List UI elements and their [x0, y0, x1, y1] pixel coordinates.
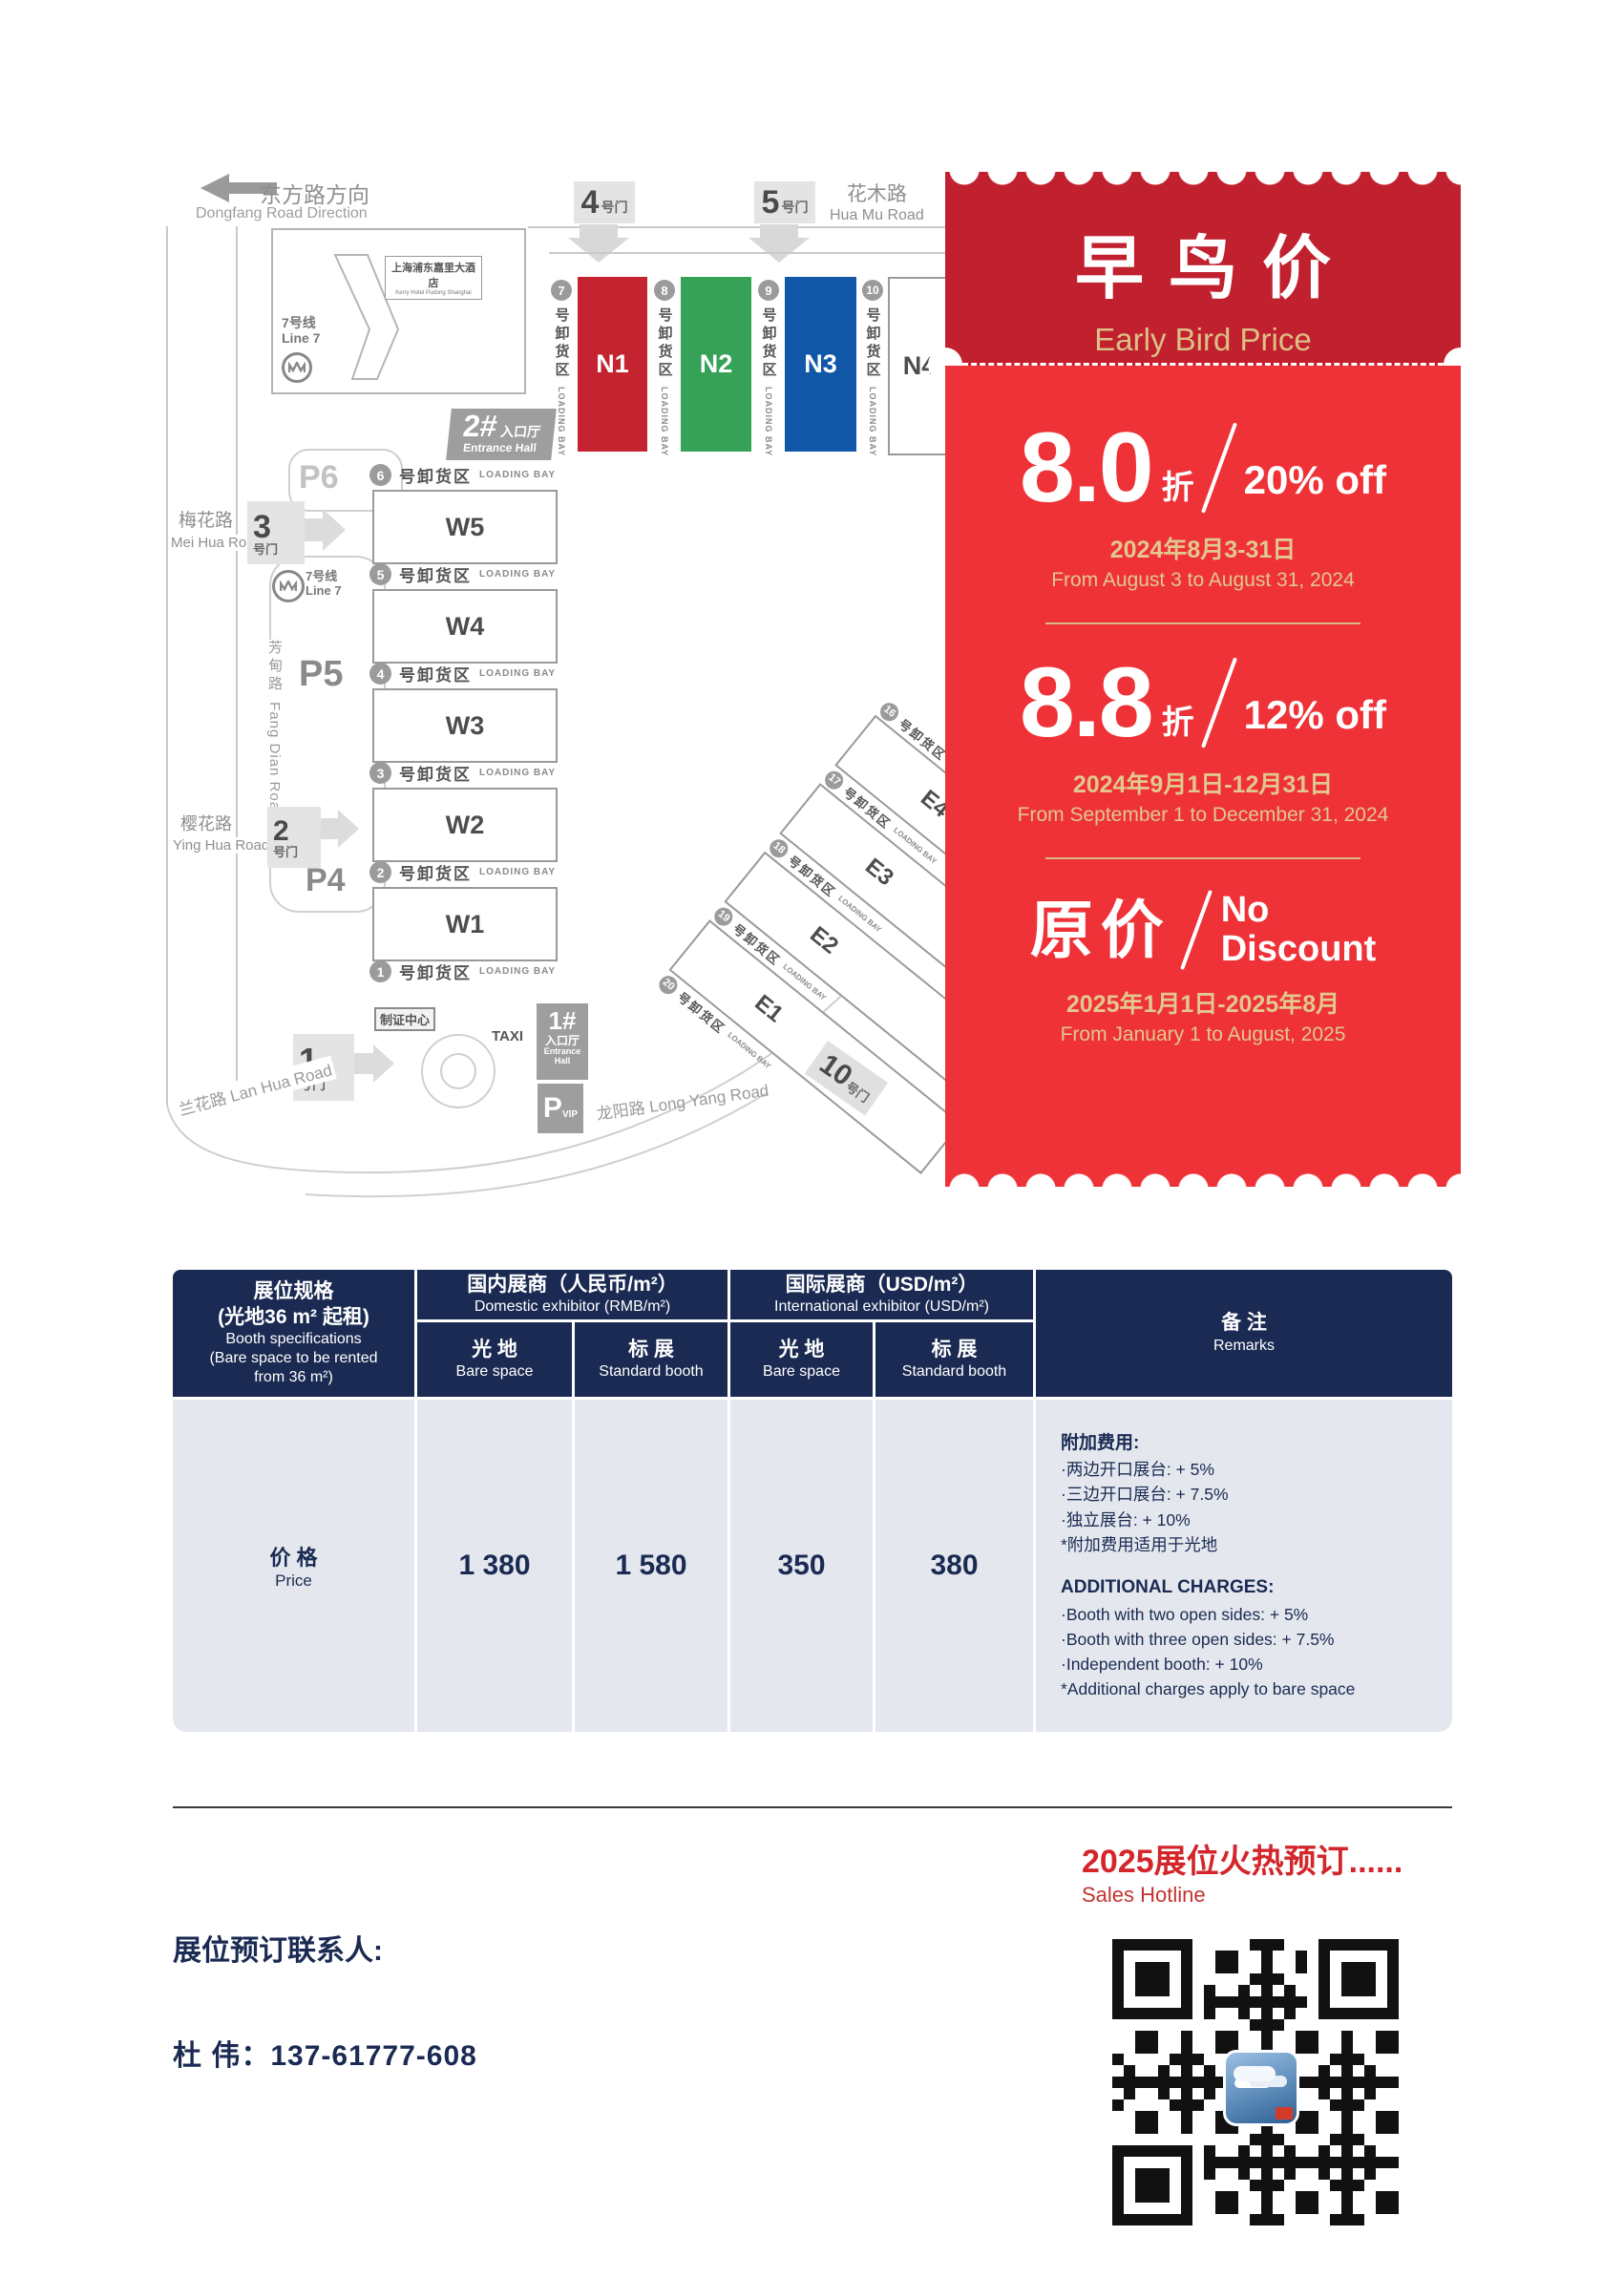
loading-bay-10-en: LOADING BAY [868, 387, 877, 456]
entrance-2-cn: 入口厅 [499, 422, 541, 441]
badge-center-label: 制证中心 [374, 1007, 435, 1031]
loading-bay-6-en: LOADING BAY [479, 470, 556, 480]
domestic-header-cn: 国内展商（人民币/m²） [467, 1273, 678, 1297]
price-domestic-standard: 1 580 [575, 1400, 728, 1732]
hotel-name-en: Kerry Hotel Pudong Shanghai [388, 290, 479, 296]
metro-line-cn-2: 7号线 [306, 570, 342, 584]
subcol1-en: Bare space [456, 1362, 534, 1382]
huamu-road-en: Hua Mu Road [830, 207, 924, 224]
spec-header-en2: (Bare space to be rented [209, 1349, 377, 1368]
hall-w2-label: W2 [446, 811, 485, 840]
metro-line-en-2: Line 7 [306, 584, 342, 599]
hall-n3-label: N3 [804, 349, 837, 379]
hall-n2: N2 [681, 277, 751, 452]
tier2-unit: 折 [1162, 696, 1194, 743]
loading-bay-6-number: 6 [369, 464, 391, 486]
entrance-hall-1: 1# 入口厅 Entrance Hall [537, 1003, 588, 1080]
loading-bay-5: 5 号卸货区 LOADING BAY [369, 562, 556, 586]
subcol3-cn: 光 地 [779, 1338, 825, 1362]
loading-bay-8-number: 8 [654, 280, 675, 301]
entrance-2-en: Entrance Hall [453, 441, 547, 454]
loading-bay-7-cn: 号卸货区 [552, 307, 572, 380]
loading-bay-3: 3 号卸货区 LOADING BAY [369, 761, 556, 785]
loading-bay-2-en: LOADING BAY [479, 867, 556, 877]
loading-bay-6: 6 号卸货区 LOADING BAY [369, 463, 556, 487]
tier2-rate: 8.8 [1020, 653, 1152, 752]
qr-center-logo [1223, 2050, 1299, 2126]
remarks-cn-item-1: ·两边开口展台: + 5% [1061, 1457, 1355, 1482]
yinghua-road-en: Ying Hua Road [171, 837, 271, 854]
international-header-cn: 国际展商（USD/m²） [786, 1273, 979, 1297]
fangdian-road-cn: 芳甸路 [266, 640, 283, 694]
tier1-discount: 20% off [1244, 457, 1386, 503]
early-bird-coupon: 早鸟价 Early Bird Price 8.0 折 20% off 2024年… [945, 172, 1461, 1184]
remarks-cn-title: 附加费用: [1061, 1430, 1355, 1458]
entrance-1-cn: 入口厅 [537, 1035, 588, 1047]
tier-full-price: 原价 No Discount [945, 888, 1461, 972]
hall-w1-label: W1 [446, 910, 485, 939]
hall-w3: W3 [372, 688, 558, 763]
hall-w4: W4 [372, 589, 558, 664]
hotline-title: 2025展位火热预订...... [1082, 1835, 1403, 1882]
metro-line-cn: 7号线 [282, 315, 320, 330]
remarks-en-title: ADDITIONAL CHARGES: [1061, 1574, 1355, 1602]
spec-header-en1: Booth specifications [225, 1330, 361, 1349]
tier1-unit: 折 [1162, 461, 1194, 508]
loading-bay-1-cn: 号卸货区 [399, 960, 472, 983]
metro-line-en: Line 7 [282, 330, 320, 346]
loading-bay-10-cn: 号卸货区 [863, 307, 883, 380]
parking-p5: P5 [299, 654, 343, 695]
metro-logo-icon-2 [272, 570, 305, 602]
loading-bay-10-number: 10 [862, 280, 883, 301]
domestic-group-header: 国内展商（人民币/m²） Domestic exhibitor (RMB/m²) [417, 1270, 728, 1319]
price-value-3: 350 [777, 1550, 825, 1582]
coupon-header: 早鸟价 Early Bird Price [945, 172, 1461, 363]
remarks-cn-item-4: *附加费用适用于光地 [1061, 1532, 1355, 1557]
qr-logo-cloud-icon [1234, 2066, 1276, 2081]
tier1-date-cn: 2024年8月3-31日 [945, 535, 1461, 567]
loading-bay-8-cn: 号卸货区 [655, 307, 675, 380]
entrance-1-en: Entrance Hall [537, 1047, 588, 1066]
loading-bay-5-cn: 号卸货区 [399, 562, 472, 586]
coupon-title-cn: 早鸟价 [945, 172, 1461, 312]
metro-logo-icon [282, 352, 312, 383]
tier3-date-cn: 2025年1月1日-2025年8月 [945, 989, 1461, 1022]
hall-n1-label: N1 [596, 349, 629, 379]
hall-n2-label: N2 [700, 349, 733, 379]
metro-line7-label-1: 7号线 Line 7 [282, 315, 320, 346]
tier3-dates: 2025年1月1日-2025年8月 From January 1 to Augu… [945, 989, 1461, 1048]
loading-bay-1-en: LOADING BAY [479, 966, 556, 977]
venue-map: 东方路方向 Dongfang Road Direction 上海浦东嘉里大酒店 … [148, 138, 955, 1213]
subcol4-cn: 标 展 [932, 1338, 978, 1362]
tier3-discount-line2: Discount [1221, 930, 1377, 969]
parking-vip-sub: VIP [562, 1109, 578, 1120]
loading-bay-1: 1 号卸货区 LOADING BAY [369, 960, 556, 983]
price-value-2: 1 580 [615, 1550, 686, 1582]
subcol-domestic-standard: 标 展 Standard booth [575, 1322, 728, 1397]
loading-bay-5-en: LOADING BAY [479, 569, 556, 580]
gate-5-number: 5 [762, 184, 780, 221]
price-value-1: 1 380 [458, 1550, 530, 1582]
tier2-dates: 2024年9月1日-12月31日 From September 1 to Dec… [945, 770, 1461, 829]
hall-w3-label: W3 [446, 711, 485, 741]
hall-w1: W1 [372, 887, 558, 961]
footer-divider [173, 1806, 1452, 1808]
loading-bay-4: 4 号卸货区 LOADING BAY [369, 662, 556, 686]
hall-n3: N3 [785, 277, 856, 452]
remarks-cn-item-3: ·独立展台: + 10% [1061, 1508, 1355, 1532]
tier2-discount: 12% off [1244, 692, 1386, 738]
loading-bay-9-cn: 号卸货区 [759, 307, 779, 380]
tier1-dates: 2024年8月3-31日 From August 3 to August 31,… [945, 535, 1461, 594]
tier-separator-2 [1045, 857, 1360, 859]
hall-n1: N1 [578, 277, 647, 452]
remarks-header-cell: 备 注 Remarks [1036, 1270, 1452, 1397]
remarks-en-item-4: *Additional charges apply to bare space [1061, 1677, 1355, 1701]
subcol3-en: Bare space [763, 1362, 840, 1382]
hall-w5: W5 [372, 490, 558, 564]
coupon-body: 8.0 折 20% off 2024年8月3-31日 From August 3… [945, 366, 1461, 1187]
subcol-international-bare: 光 地 Bare space [730, 1322, 873, 1397]
loading-bay-2-number: 2 [369, 861, 391, 883]
gate-5: 5 号门 [754, 181, 815, 223]
gate-4-suffix: 号门 [601, 198, 627, 217]
fangdian-road-label: 芳甸路 Fang Dian Road [264, 640, 285, 819]
loading-bay-2: 2 号卸货区 LOADING BAY [369, 860, 556, 884]
tier3-discount: No Discount [1221, 891, 1377, 969]
gate-3-number: 3 [253, 511, 271, 543]
loading-bay-8: 8 号卸货区 LOADING BAY [652, 280, 677, 456]
parking-vip: P VIP [538, 1084, 583, 1133]
loading-bay-1-number: 1 [369, 960, 391, 982]
loading-bay-5-number: 5 [369, 563, 391, 585]
tier1-slash-icon [1201, 422, 1237, 513]
hall-w5-label: W5 [446, 513, 485, 542]
hall-w4-label: W4 [446, 612, 485, 642]
price-label-cn: 价 格 [269, 1541, 317, 1571]
loading-bay-10: 10 号卸货区 LOADING BAY [860, 280, 885, 456]
entrance-1-number: 1# [537, 1007, 588, 1035]
subcol-domestic-bare: 光 地 Bare space [417, 1322, 572, 1397]
loading-bay-9: 9 号卸货区 LOADING BAY [756, 280, 781, 456]
subcol2-cn: 标 展 [628, 1338, 674, 1362]
international-group-header: 国际展商（USD/m²） International exhibitor (US… [730, 1270, 1033, 1319]
gate1-arrow-icon [350, 1044, 394, 1083]
subcol-international-standard: 标 展 Standard booth [875, 1322, 1033, 1397]
remarks-body-cell: 附加费用: ·两边开口展台: + 5% ·三边开口展台: + 7.5% ·独立展… [1036, 1400, 1452, 1732]
coupon-title-en: Early Bird Price [945, 322, 1461, 358]
taxi-label: TAXI [492, 1028, 523, 1044]
tier2-slash-icon [1201, 657, 1237, 748]
price-label-en: Price [275, 1571, 312, 1591]
tier2-date-en: From September 1 to December 31, 2024 [945, 802, 1461, 829]
loading-bay-9-number: 9 [758, 280, 779, 301]
domestic-header-en: Domestic exhibitor (RMB/m²) [475, 1297, 670, 1317]
loading-bay-3-en: LOADING BAY [479, 768, 556, 778]
remarks-en-item-3: ·Independent booth: + 10% [1061, 1652, 1355, 1677]
spec-header-cn2: (光地36 m² 起租) [218, 1305, 369, 1330]
tier-separator-1 [1045, 622, 1360, 624]
qr-logo-flag-icon [1276, 2107, 1293, 2120]
tier1-date-en: From August 3 to August 31, 2024 [945, 567, 1461, 594]
hall-w2: W2 [372, 788, 558, 862]
contact-label: 展位预订联系人: [173, 1927, 383, 1969]
spec-header-cell: 展位规格 (光地36 m² 起租) Booth specifications (… [173, 1270, 414, 1397]
direction-sign-cn: 东方路方向 [260, 177, 369, 209]
tier3-slash-icon [1180, 890, 1213, 970]
loading-bay-4-number: 4 [369, 663, 391, 685]
parking-vip-p: P [543, 1092, 562, 1125]
loading-bay-9-en: LOADING BAY [764, 387, 773, 456]
loading-bay-2-cn: 号卸货区 [399, 860, 472, 884]
remarks-header-en: Remarks [1213, 1337, 1275, 1356]
gate-3-suffix: 号门 [253, 543, 278, 556]
loading-bay-7-number: 7 [551, 280, 572, 301]
tier-early-bird-2: 8.8 折 12% off [945, 653, 1461, 752]
gate5-arrow-icon [749, 224, 810, 263]
metro-line7-label-2: 7号线 Line 7 [306, 570, 342, 599]
gate-2-suffix: 号门 [273, 846, 298, 858]
parking-p6: P6 [299, 459, 339, 496]
contact-phone: 杜 伟：137-61777-608 [173, 2032, 477, 2074]
direction-sign-en: Dongfang Road Direction [196, 205, 368, 222]
international-header-en: International exhibitor (USD/m²) [774, 1297, 989, 1317]
gate4-arrow-icon [568, 224, 629, 263]
hotel-label: 上海浦东嘉里大酒店 Kerry Hotel Pudong Shanghai [385, 256, 482, 300]
huamu-road-cn: 花木路 [830, 179, 924, 207]
huamu-road-label: 花木路 Hua Mu Road [830, 179, 924, 224]
hotline-subtitle: Sales Hotline [1082, 1883, 1206, 1908]
yinghua-road-cn: 樱花路 [179, 814, 234, 834]
gate-3: 3 号门 [247, 501, 305, 564]
price-value-4: 380 [930, 1550, 978, 1582]
price-domestic-bare: 1 380 [417, 1400, 572, 1732]
remarks-cn-item-2: ·三边开口展台: + 7.5% [1061, 1482, 1355, 1507]
gate-4-number: 4 [581, 184, 600, 221]
gate-4: 4 号门 [574, 181, 635, 223]
entrance-2-number: 2# [461, 411, 498, 441]
tier3-label: 原价 [1030, 898, 1171, 961]
remarks-en-item-2: ·Booth with three open sides: + 7.5% [1061, 1627, 1355, 1652]
gate-2: 2 号门 [267, 807, 321, 868]
loading-bay-6-cn: 号卸货区 [399, 463, 472, 487]
price-international-standard: 380 [875, 1400, 1033, 1732]
remarks-en-item-1: ·Booth with two open sides: + 5% [1061, 1602, 1355, 1627]
spec-header-cn1: 展位规格 [254, 1279, 334, 1304]
meihua-road-cn: 梅花路 [177, 511, 235, 532]
loading-bay-7-en: LOADING BAY [557, 387, 566, 456]
wechat-qr-code [1109, 1936, 1407, 2234]
tier-early-bird-1: 8.0 折 20% off [945, 418, 1461, 517]
price-international-bare: 350 [730, 1400, 873, 1732]
spec-header-en3: from 36 m²) [254, 1368, 333, 1387]
remarks-header-cn: 备 注 [1221, 1311, 1267, 1336]
tier1-rate: 8.0 [1020, 418, 1152, 517]
loading-bay-3-number: 3 [369, 762, 391, 784]
subcol2-en: Standard booth [599, 1362, 703, 1382]
price-row-label: 价 格 Price [173, 1400, 414, 1732]
tier2-date-cn: 2024年9月1日-12月31日 [945, 770, 1461, 802]
fangdian-road-en: Fang Dian Road [266, 702, 283, 819]
parking-p4: P4 [306, 862, 346, 899]
gate-2-number: 2 [273, 817, 289, 846]
tier3-date-en: From January 1 to August, 2025 [945, 1022, 1461, 1048]
loading-bay-4-cn: 号卸货区 [399, 662, 472, 686]
hotel-name-cn: 上海浦东嘉里大酒店 [388, 260, 479, 290]
gate-5-suffix: 号门 [781, 198, 808, 217]
loading-bay-4-en: LOADING BAY [479, 668, 556, 679]
entrance-hall-2: 2# 入口厅 Entrance Hall [446, 409, 557, 460]
subcol4-en: Standard booth [902, 1362, 1006, 1382]
loading-bay-3-cn: 号卸货区 [399, 761, 472, 785]
tier3-discount-line1: No [1221, 891, 1377, 930]
subcol1-cn: 光 地 [472, 1338, 517, 1362]
price-table: 展位规格 (光地36 m² 起租) Booth specifications (… [173, 1270, 1452, 1732]
loading-bay-8-en: LOADING BAY [660, 387, 669, 456]
